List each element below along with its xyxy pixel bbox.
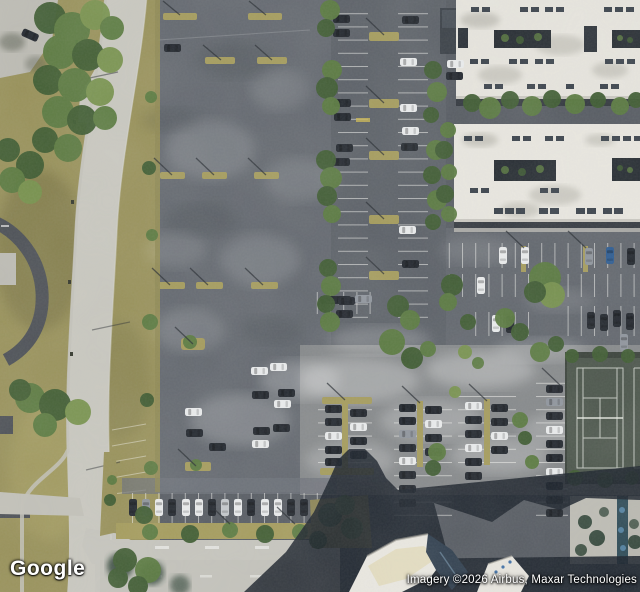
satellite-map-viewport[interactable]: Google Imagery ©2026 Airbus, Maxar Techn…	[0, 0, 640, 592]
imagery-texture	[0, 0, 640, 592]
satellite-imagery	[0, 0, 640, 592]
google-logo[interactable]: Google	[10, 557, 85, 581]
imagery-attribution: Imagery ©2026 Airbus, Maxar Technologies	[407, 574, 637, 586]
